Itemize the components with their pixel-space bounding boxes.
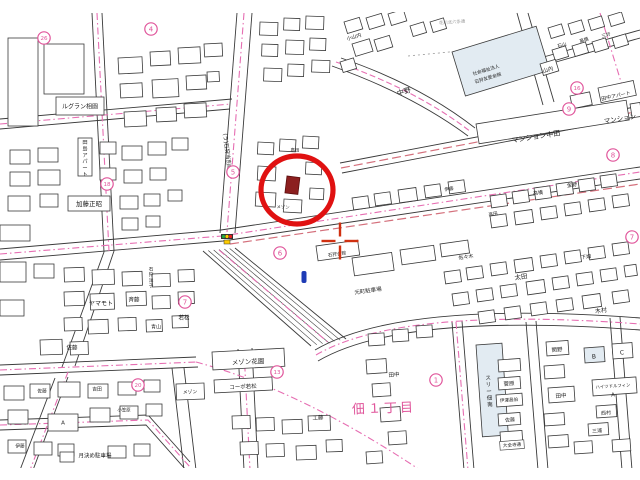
- building: [256, 417, 274, 431]
- building: [388, 431, 407, 445]
- building: [476, 288, 494, 302]
- building: [207, 71, 220, 82]
- building: [0, 300, 24, 316]
- circled-number-text: 4: [149, 26, 154, 34]
- map-viewport[interactable]: ルグラン相園田島アパート加藤正昭(う)石狩当別線中野小山内社会福祉法人石狩友愛会…: [0, 0, 640, 480]
- building: [257, 142, 274, 155]
- map-label: 太田: [514, 271, 528, 282]
- building: [118, 317, 136, 331]
- circled-number-text: 6: [278, 250, 283, 258]
- building: [38, 148, 58, 162]
- building: [0, 225, 30, 241]
- building: [144, 194, 160, 206]
- building: [574, 441, 593, 454]
- building: [600, 268, 618, 282]
- building: [122, 146, 142, 160]
- building: [8, 410, 28, 424]
- building: [296, 445, 316, 460]
- building: [8, 38, 38, 126]
- building: [612, 242, 630, 256]
- building: [40, 339, 63, 355]
- building: [424, 184, 442, 198]
- circled-number-text: 8: [611, 152, 615, 160]
- map-label: メゾン: [276, 204, 290, 211]
- map-label: 西村: [601, 409, 611, 417]
- building: [120, 196, 138, 209]
- building: [144, 380, 160, 392]
- building: [266, 443, 284, 457]
- building: [40, 194, 58, 207]
- building: [352, 196, 370, 210]
- building: [478, 310, 496, 324]
- building: [0, 262, 26, 282]
- building: [578, 178, 596, 192]
- map-label: 佐藤: [66, 344, 78, 352]
- building: [512, 190, 530, 204]
- building: [444, 270, 462, 284]
- building: [264, 68, 282, 82]
- building: [540, 206, 558, 220]
- building: [416, 325, 433, 338]
- building: [526, 279, 546, 294]
- building: [146, 216, 160, 227]
- building: [392, 329, 409, 342]
- building: [134, 444, 150, 456]
- target-building: [285, 176, 300, 194]
- map-label: 石狩洋子: [149, 266, 154, 289]
- building: [600, 174, 618, 188]
- building: [309, 188, 324, 200]
- building: [288, 64, 304, 77]
- building: [576, 272, 594, 286]
- circled-number-text: 18: [103, 182, 111, 188]
- map-label: 佃１丁目: [352, 400, 417, 417]
- building: [58, 382, 80, 397]
- building: [34, 264, 54, 278]
- building: [540, 254, 558, 268]
- building: [44, 44, 84, 94]
- map-label: 小笠原: [117, 407, 131, 414]
- building: [612, 290, 630, 304]
- building: [100, 142, 116, 154]
- building: [612, 439, 631, 452]
- building: [152, 295, 170, 309]
- map-label: A: [61, 421, 65, 427]
- building: [544, 365, 565, 379]
- building: [172, 138, 188, 150]
- building: [498, 358, 521, 372]
- building: [64, 317, 82, 331]
- building: [184, 103, 207, 118]
- building: [122, 271, 142, 286]
- building: [306, 16, 324, 30]
- building: [398, 187, 418, 202]
- building: [168, 190, 182, 201]
- circled-number-text: 9: [567, 106, 571, 114]
- building: [556, 298, 574, 312]
- building: [284, 18, 300, 31]
- building: [282, 419, 302, 434]
- building: [64, 291, 84, 306]
- building: [122, 218, 138, 230]
- map-label: 吉田: [92, 387, 102, 393]
- map-label: B: [592, 353, 597, 360]
- building: [548, 435, 569, 448]
- building: [124, 111, 147, 127]
- map-label: C: [620, 349, 625, 356]
- circled-number-text: 5: [231, 169, 235, 177]
- building: [150, 51, 171, 66]
- building: [310, 38, 326, 51]
- building: [34, 442, 52, 455]
- building: [120, 83, 143, 98]
- building: [178, 269, 194, 282]
- map-label: 三浦: [592, 427, 602, 435]
- building: [612, 194, 630, 208]
- building: [204, 43, 223, 57]
- map-label: 斉藤: [128, 296, 140, 304]
- building: [490, 194, 508, 208]
- map-label: A: [611, 392, 615, 398]
- map-label: 佐藤: [37, 388, 47, 395]
- building: [500, 284, 518, 298]
- map-label: 高橋: [533, 189, 544, 197]
- building: [552, 276, 570, 290]
- circled-number-text: 16: [573, 86, 581, 92]
- building: [152, 79, 179, 98]
- building: [504, 306, 522, 320]
- building: [490, 262, 508, 276]
- map-label: 木村: [594, 306, 607, 316]
- building: [124, 170, 142, 183]
- building: [544, 413, 565, 426]
- building: [366, 451, 383, 464]
- building: [146, 404, 162, 416]
- map-label: 佐藤: [505, 416, 515, 424]
- building: [582, 293, 602, 308]
- building: [260, 22, 278, 36]
- map-label: 田島アパート: [82, 139, 87, 178]
- map-canvas[interactable]: ルグラン相園田島アパート加藤正昭(う)石狩当別線中野小山内社会福祉法人石狩友愛会…: [0, 0, 640, 480]
- building: [10, 150, 30, 164]
- building: [92, 269, 115, 285]
- circled-number-text: 1: [434, 377, 438, 385]
- building: [514, 257, 534, 272]
- building: [178, 47, 201, 64]
- building: [38, 170, 60, 185]
- building: [466, 266, 484, 280]
- building: [10, 172, 30, 186]
- building: [64, 267, 84, 282]
- map-label: 青山: [151, 324, 161, 331]
- map-label: 伊藤: [15, 443, 25, 450]
- building: [88, 319, 108, 334]
- building: [186, 75, 207, 90]
- building: [366, 359, 387, 374]
- building: [232, 415, 250, 429]
- building: [240, 441, 258, 455]
- building: [624, 264, 637, 277]
- map-label: 若松: [178, 314, 190, 322]
- circled-number-text: 13: [273, 370, 281, 376]
- building: [150, 168, 166, 180]
- circled-number-text: 26: [40, 36, 48, 42]
- building: [152, 273, 170, 287]
- building: [156, 107, 177, 122]
- building: [514, 209, 534, 224]
- building: [452, 292, 470, 306]
- building: [302, 136, 319, 149]
- map-label: ルグラン相園: [62, 103, 98, 111]
- map-label: 下畑: [581, 253, 592, 261]
- building: [4, 386, 24, 400]
- building: [118, 57, 143, 74]
- building: [286, 40, 304, 55]
- building: [326, 439, 342, 452]
- map-label: 加藤正昭: [76, 199, 102, 208]
- map-label: 月決め駐車場: [78, 452, 112, 460]
- building: [8, 196, 30, 211]
- building: [148, 142, 166, 155]
- building: [60, 452, 74, 462]
- bus-stop-icon: [302, 271, 307, 283]
- building: [564, 250, 582, 264]
- building: [588, 198, 606, 212]
- building: [368, 333, 385, 346]
- building: [312, 60, 330, 73]
- map-label: メゾン花園: [232, 356, 265, 367]
- map-label: ヤマモト: [89, 301, 113, 308]
- building: [564, 202, 582, 216]
- map-label: メゾン: [183, 389, 198, 396]
- building: [90, 408, 110, 422]
- building: [372, 383, 391, 397]
- building: [262, 44, 278, 57]
- circled-number-text: 7: [183, 299, 187, 307]
- building: [530, 302, 548, 316]
- circled-number-text: 20: [134, 383, 142, 389]
- building: [374, 192, 392, 206]
- circled-number-text: 7: [630, 234, 634, 242]
